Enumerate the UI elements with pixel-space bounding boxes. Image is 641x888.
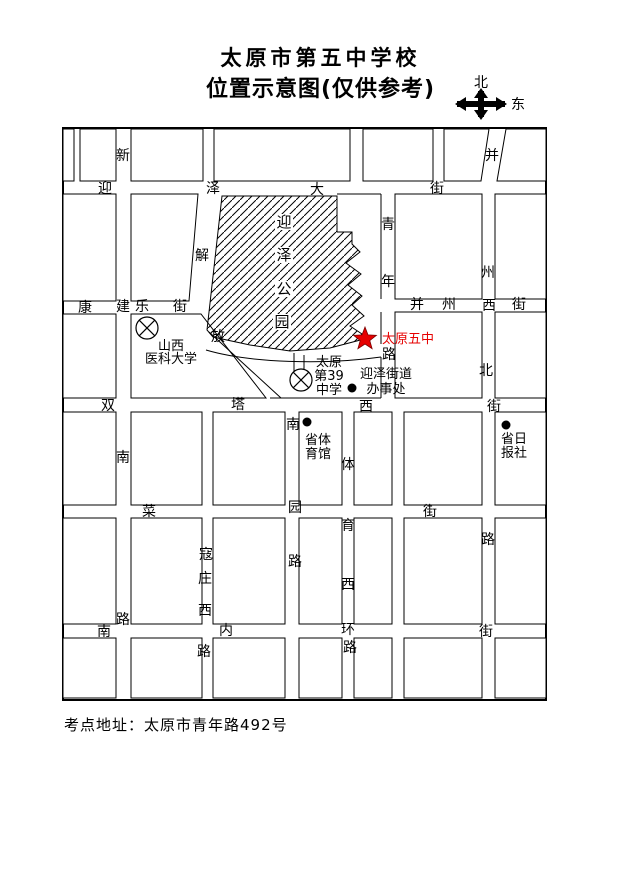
city-block <box>495 638 546 698</box>
city-block <box>213 412 285 505</box>
city-block <box>495 194 546 299</box>
street-label-新建南路: 南 <box>116 450 130 466</box>
poi-label-太原第39中学: 太原 <box>316 355 342 370</box>
exam-address: 考点地址：太原市青年路492号 <box>64 714 288 735</box>
city-block <box>395 312 482 398</box>
street-label-并州西街: 并 <box>410 297 424 313</box>
city-block <box>213 638 285 698</box>
park-label-char: 迎 <box>276 213 291 231</box>
poi-label-太原第39中学: 中学 <box>316 382 342 398</box>
street-label-迎泽大街: 大 <box>310 182 324 198</box>
street-label-南内环街: 环 <box>341 622 355 638</box>
street-label-寇庄西路: 路 <box>197 644 211 660</box>
street-label-并州西街: 街 <box>512 297 526 313</box>
city-block <box>131 194 198 301</box>
poi-label-迎泽街道办事处: 迎泽街道 <box>360 367 412 382</box>
street-label-并州北路: 路 <box>481 532 495 548</box>
poi-label-太原第39中学: 第39 <box>314 369 344 384</box>
page: 太原市第五中学校 位置示意图(仅供参考) 北 东 迎泽大街新建南路康乐街解放青年… <box>0 0 641 888</box>
city-block <box>495 518 546 624</box>
poi-label-省日报社: 报社 <box>501 445 527 461</box>
street-label-迎泽大街: 泽 <box>206 181 220 197</box>
city-block <box>131 518 202 624</box>
city-block <box>299 638 342 698</box>
city-block <box>354 638 392 698</box>
poi-label-迎泽街道办事处: 办事处 <box>366 382 405 397</box>
city-block <box>354 518 392 624</box>
city-block <box>395 194 482 299</box>
street-label-并州北路: 北 <box>479 363 493 379</box>
street-label-康乐街: 乐 <box>135 299 149 315</box>
city-block <box>63 638 116 698</box>
street-label-体育西路: 西 <box>341 577 355 593</box>
city-block <box>80 129 116 181</box>
city-block <box>404 638 482 698</box>
city-block <box>497 129 546 181</box>
street-label-新建南路: 建 <box>116 299 130 315</box>
park-label-char: 公 <box>276 280 291 298</box>
city-block <box>444 129 489 181</box>
street-label-南园路: 路 <box>288 554 302 570</box>
city-block <box>354 412 392 505</box>
street-label-双塔西街: 双 <box>101 398 115 414</box>
poi-label-省日报社: 省日 <box>501 432 527 447</box>
city-block <box>363 129 433 181</box>
street-label-菜园街: 菜 <box>142 504 156 520</box>
street-label-寇庄西路: 西 <box>198 603 212 619</box>
street-label-并州西街: 西 <box>482 298 496 314</box>
street-label-迎泽大街: 迎 <box>98 181 112 197</box>
city-block <box>213 518 285 624</box>
city-block <box>63 194 116 301</box>
city-block <box>63 129 74 181</box>
map: 迎泽大街新建南路康乐街解放青年路并州北路并州西街双塔西街菜街南园路体育西路寇庄西… <box>0 0 641 888</box>
street-label-双塔西街: 塔 <box>231 397 245 413</box>
city-block <box>63 412 116 505</box>
street-label-南内环街: 街 <box>479 624 493 640</box>
street-label-解放路: 放 <box>211 329 225 345</box>
street-label-并州西街: 州 <box>442 297 456 313</box>
street-label-新建南路: 路 <box>116 612 130 628</box>
poi-label-省体育馆: 省体 <box>305 433 331 448</box>
street-label-并州北路: 并 <box>485 148 499 164</box>
city-block <box>131 129 203 181</box>
street-label-新建南路: 新 <box>116 148 130 164</box>
park-label-char: 泽 <box>276 246 291 264</box>
street-label-南园路: 南 <box>286 417 300 433</box>
city-block <box>495 312 546 398</box>
street-label-体育西路: 体 <box>341 457 355 473</box>
street-label-并州北路: 州 <box>481 265 495 281</box>
city-block <box>63 518 116 624</box>
street-label-寇庄西路: 庄 <box>198 570 212 587</box>
poi-dot-marker <box>303 418 312 427</box>
city-block <box>63 314 116 398</box>
roundabout-icon <box>290 369 312 391</box>
city-block <box>131 412 202 505</box>
street-label-南内环街: 南 <box>97 624 111 640</box>
city-block <box>131 638 202 698</box>
poi-label-省体育馆: 育馆 <box>305 446 331 462</box>
park-label-char: 园 <box>274 313 289 331</box>
street-label-迎泽大街: 街 <box>430 181 444 197</box>
street-label-康乐街: 康 <box>78 299 92 316</box>
street-label-体育西路: 路 <box>343 640 357 656</box>
street-label-康乐街: 街 <box>173 299 187 315</box>
street-label-菜园街: 街 <box>423 504 437 520</box>
street-label-体育西路: 育 <box>341 518 355 534</box>
poi-dot-marker <box>348 384 357 393</box>
poi-label-山西医科大学: 医科大学 <box>145 351 197 367</box>
street-label-双塔西街: 街 <box>487 399 501 415</box>
poi-dot-marker <box>502 421 511 430</box>
street-label-青年路: 青 <box>381 217 395 233</box>
street-label-南园路: 园 <box>288 500 302 516</box>
city-block <box>214 129 350 181</box>
street-label-青年路: 年 <box>381 274 395 290</box>
street-label-双塔西街: 西 <box>359 399 373 415</box>
city-block <box>404 518 482 624</box>
roundabout-icon <box>136 317 158 339</box>
street-label-解放路: 解 <box>195 248 209 264</box>
city-block <box>299 518 342 624</box>
street-label-南内环街: 内 <box>219 623 233 639</box>
city-block <box>404 412 482 505</box>
street-label-寇庄西路: 寇 <box>199 546 213 563</box>
poi-label-太原五中: 太原五中 <box>382 332 434 347</box>
street-label-青年路: 路 <box>382 347 396 363</box>
